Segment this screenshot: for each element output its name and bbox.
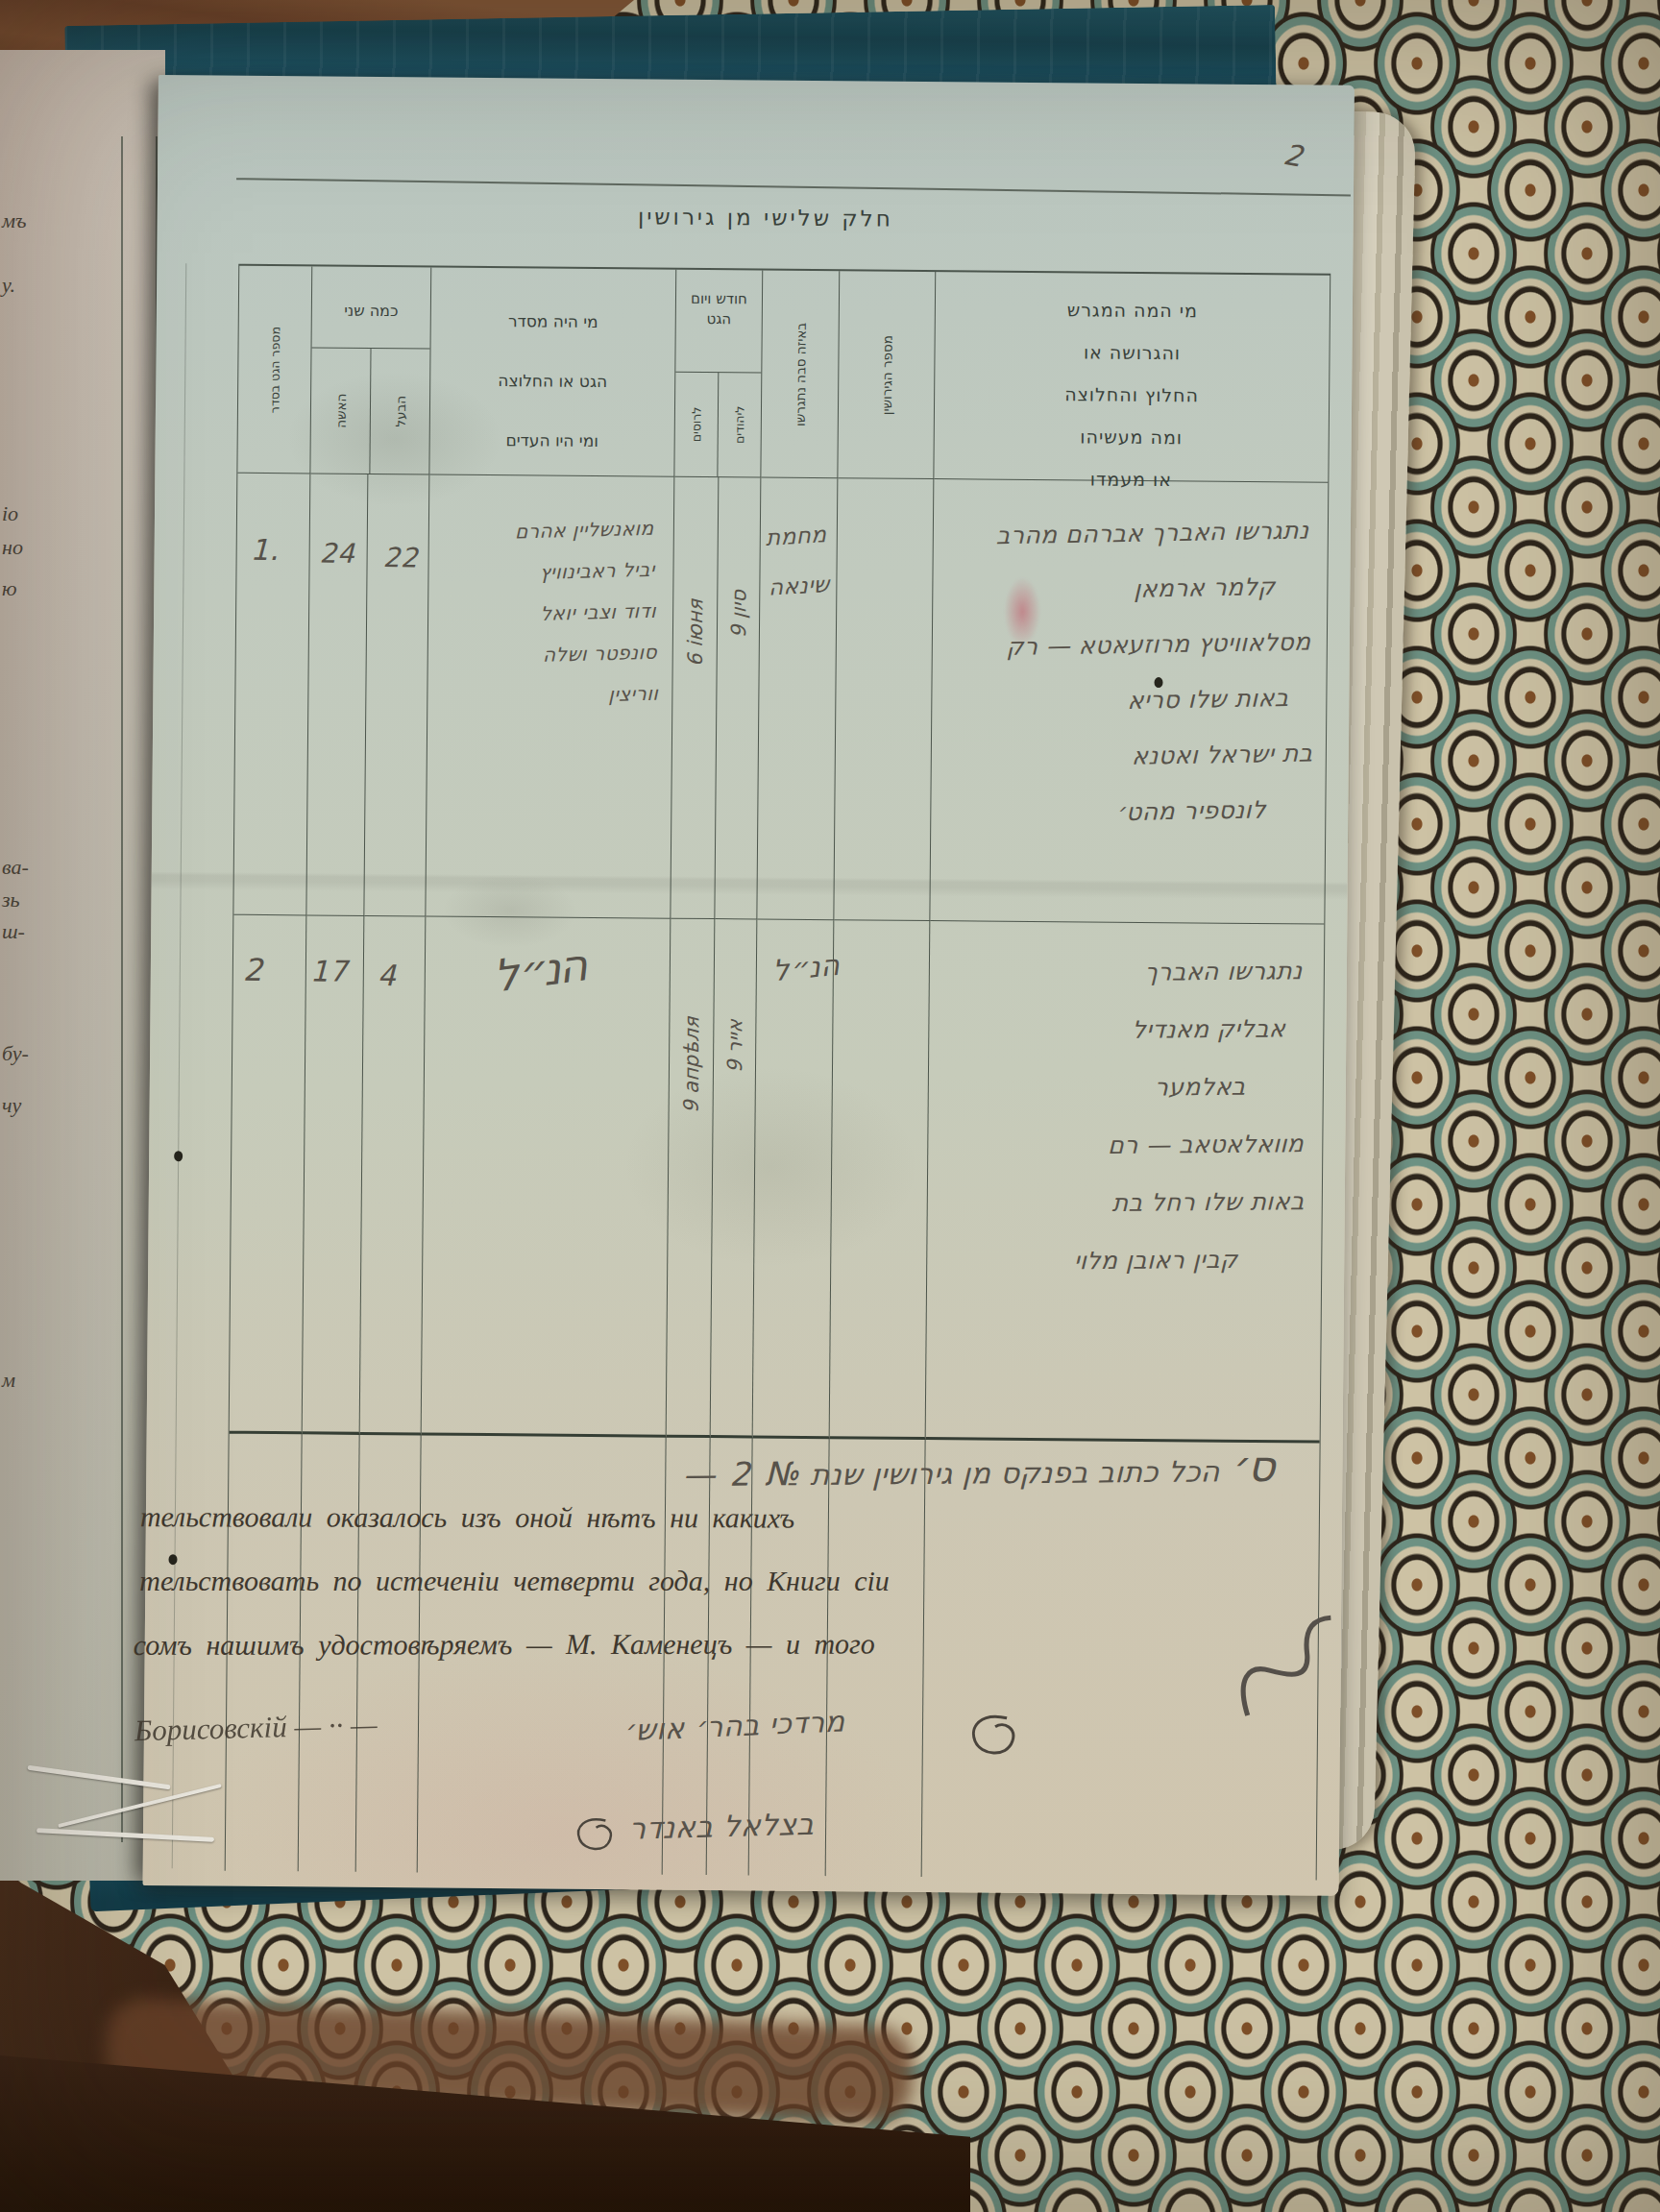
header-date-line2: הגט	[676, 309, 762, 330]
footer-russian-line-2: тельствовать по истеченіи четверти года,…	[139, 1565, 889, 1597]
row1-age-husband-cell: 22	[364, 474, 429, 917]
header-ages-label: כמה שני	[312, 266, 431, 349]
row1-parties-line: בת ישראל ואטנא	[934, 726, 1313, 789]
page-number: 2	[1282, 137, 1306, 174]
binding-hole	[168, 1554, 177, 1565]
left-page-fragment: ю	[2, 576, 17, 601]
row1-age-wife-cell: 24	[306, 474, 368, 916]
row2-reason-ditto: הנ״ל	[770, 948, 841, 988]
row2-no: 2	[243, 952, 263, 988]
header-officiant-line: ומי היו העדים	[429, 409, 674, 471]
footer-entry-number: № 2 —	[682, 1454, 800, 1494]
row2-count-cell	[830, 920, 931, 1440]
header-date-jewish: ליהודים	[718, 373, 761, 476]
header-date-russian: לרוסים	[674, 373, 719, 476]
row1-date-jewish: 9 סיון	[726, 590, 749, 638]
row1-parties-cell: נתגרשו האברך אברהם מהרב קלמר ארמאן מסלאו…	[930, 479, 1328, 925]
row2-date-jewish: 9 אייר	[722, 1019, 745, 1073]
row1-parties-line: באות שלו סריא	[933, 670, 1312, 733]
header-reason-column: באיזה סבה נתגרשו	[761, 270, 840, 478]
row2-parties-line: מוואלאטאב — רם	[929, 1115, 1305, 1176]
header-officiant-column: מי היה מסדר הגט או החלוצה ומי היו העדים	[429, 267, 676, 476]
row2-reason-cell: הנ״ל	[753, 919, 835, 1439]
row1-parties-line: מסלאוויטץ מרוזעאטא — רק	[932, 615, 1311, 677]
row1-officiant-line: ודוד וצבי יואל	[428, 591, 656, 638]
row2-officiant-cell: הנ״ל	[422, 916, 671, 1437]
header-count-column: מספר הגירושין	[838, 271, 936, 479]
footer-hebrew-summary-line: ס׳ הכל כתוב בפנקס מן גירושין שנת № 2 —	[682, 1442, 1275, 1495]
row2-no-cell: 2	[230, 915, 307, 1435]
row1-date-russian-cell: 6 іюня	[671, 477, 719, 919]
row2-parties-line: נתגרשו האברך	[927, 942, 1303, 1003]
header-no-column: מספר הגט בסדר	[237, 266, 312, 474]
left-page-fragment: м	[2, 1368, 15, 1393]
left-page-fragment: чу	[2, 1093, 21, 1118]
row2-date-jewish-cell: 9 אייר	[711, 919, 758, 1438]
row2-age-husband-cell: 4	[360, 916, 427, 1436]
row2-parties-cell: נתגרשו האברך אבליק מאנדיל באלמער מוואלאט…	[926, 921, 1325, 1444]
row1-officiant-line: מואנשליין אהרם	[427, 508, 654, 555]
header-reason-label: באיזה סבה נתגרשו	[792, 322, 808, 425]
register-page: חלק שלישי מן גירושין 2 מספר הגט בסדר כמה…	[143, 75, 1355, 1896]
header-parties-line: החלוץ והחלוצה	[935, 372, 1329, 418]
row1-officiant-line: סונפטר ושלה	[429, 632, 657, 679]
header-no-label: מספר הגט בסדר	[267, 326, 282, 412]
page-title: חלק שלישי מן גירושין	[638, 204, 893, 231]
row1-reason-line: מחמת	[759, 509, 828, 563]
row2-age-wife-cell: 17	[303, 915, 365, 1435]
row2-age-husband: 4	[378, 959, 397, 992]
row2-date-russian: 9 апрѣля	[679, 1017, 703, 1113]
row1-reason-cell: מחמת שינאה	[757, 477, 838, 920]
footer-hebrew-text: הכל כתוב בפנקס מן גירושין שנת	[810, 1454, 1220, 1492]
row2-age-wife: 17	[310, 954, 348, 987]
binding-hole	[174, 1151, 183, 1161]
footer-russian-line-3: сомъ нашимъ удостовѣряемъ — М. Каменецъ …	[134, 1628, 875, 1662]
left-page-fragment: ва-	[2, 855, 29, 880]
top-rule	[236, 178, 1351, 196]
header-officiant-line: מי היה מסדר	[431, 290, 676, 352]
row1-officiant-line: יביל ראבינוויץ	[427, 549, 655, 596]
header-age-wife: האשה	[310, 348, 371, 474]
row1-reason-line: שינאה	[762, 559, 831, 613]
flourish-initial: ס׳	[1229, 1442, 1275, 1491]
header-date-column: חודש ויום הגט לרוסים ליהודים	[674, 270, 763, 478]
row1-parties-line: לונספיר מהט׳	[935, 782, 1314, 844]
row2-parties-line: קבין ראובן מלוי	[930, 1230, 1306, 1291]
row1-officiant-line: ווריצין	[430, 673, 658, 720]
header-date-label: חודש ויום הגט	[675, 270, 762, 374]
row2-parties-line: באלמער	[928, 1057, 1304, 1118]
row1-no: 1.	[251, 533, 280, 567]
row1-parties-line: נתגרשו האברך אברהם מהרב	[930, 503, 1309, 566]
paraph-circle-icon	[963, 1709, 1022, 1762]
row2-officiant-ditto-flourish: הנ״ל	[490, 938, 588, 1002]
header-ages-column: כמה שני האשה הבעל	[310, 266, 431, 474]
header-officiant-line: הגט או החלוצה	[430, 350, 675, 411]
footer-russian-line-1: тельствовали оказалось изъ оной нѣтъ ни …	[140, 1500, 794, 1534]
margin-line	[172, 263, 187, 1868]
left-page-fragment: іо	[2, 501, 18, 526]
row1-age-husband: 22	[382, 542, 418, 573]
header-parties-column: מי המה המגרש והגרושה או החלוץ והחלוצה ומ…	[934, 272, 1330, 483]
row2-parties-line: אבליק מאנדיל	[928, 1000, 1304, 1060]
row1-date-russian: 6 іюня	[683, 599, 707, 667]
row1-officiant-cell: מואנשליין אהרם יביל ראבינוויץ ודוד וצבי …	[426, 474, 674, 918]
signature-russian: Борисовскій — ·· —	[134, 1708, 378, 1749]
row1-parties-line: קלמר ארמאן	[931, 559, 1310, 621]
header-age-husband: הבעל	[370, 349, 429, 474]
header-count-label: מספר הגירושין	[878, 334, 894, 414]
header-parties-line: והגרושה או	[935, 329, 1329, 376]
header-parties-line: ומה מעשיהו	[935, 414, 1329, 460]
left-page-fragment: бу-	[2, 1041, 29, 1066]
left-page-fragment: но	[2, 535, 23, 560]
row2-parties-line: באות שלו רחל בת	[929, 1173, 1305, 1233]
row1-date-jewish-cell: 9 סיון	[715, 477, 761, 919]
photo-scene: мъ у. іо но ю ва- зь ш- бу- чу м חלק שלי…	[0, 0, 1660, 2212]
signature-hebrew-2: בצלאל באנדר	[628, 1807, 815, 1846]
row1-count-cell	[834, 478, 934, 921]
left-page-fragment: у.	[2, 273, 15, 298]
facing-page-sliver: мъ у. іо но ю ва- зь ш- бу- чу м	[0, 50, 165, 1881]
left-page-fragment: ш-	[2, 919, 25, 944]
row2-date-russian-cell: 9 апрѣля	[667, 919, 716, 1438]
row1-no-cell: 1.	[233, 474, 310, 916]
paraph-circle-icon	[570, 1813, 618, 1856]
left-page-fragment: мъ	[2, 208, 26, 233]
left-page-fragment: зь	[2, 887, 20, 912]
row1-age-wife: 24	[320, 537, 355, 569]
header-parties-line: מי המה המגרש	[936, 287, 1330, 333]
header-date-line1: חודש ויום	[676, 289, 762, 310]
